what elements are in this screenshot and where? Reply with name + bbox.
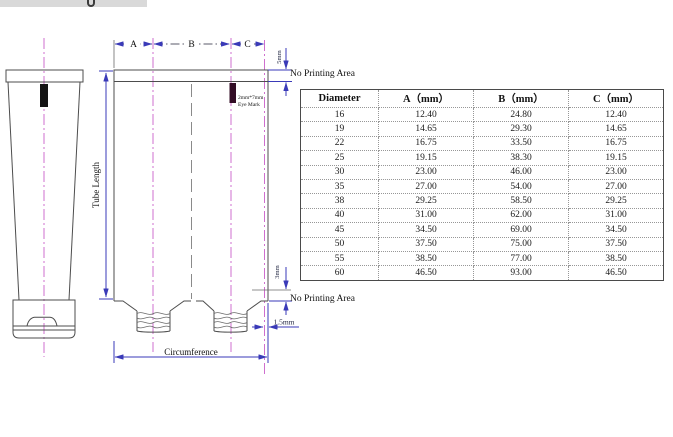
spec-table-body: 1612.4024.8012.401914.6529.3014.652216.7… — [301, 108, 664, 281]
table-row: 1612.4024.8012.40 — [301, 108, 664, 122]
tube-side-view — [6, 38, 83, 357]
table-cell: 37.50 — [569, 237, 664, 251]
table-cell: 45 — [301, 223, 379, 237]
table-cell: 29.25 — [569, 194, 664, 208]
seam-dimension: 1.5mm — [252, 318, 299, 328]
table-cell: 58.50 — [474, 194, 569, 208]
column-header: C（mm） — [569, 90, 664, 108]
table-cell: 38.50 — [379, 251, 474, 265]
table-cell: 46.50 — [569, 266, 664, 280]
column-header: A（mm） — [379, 90, 474, 108]
table-cell: 46.50 — [379, 266, 474, 280]
bottom-offset-label: 3mm — [274, 265, 281, 278]
eye-mark — [40, 84, 48, 107]
table-cell: 60 — [301, 266, 379, 280]
table-cell: 33.50 — [474, 136, 569, 150]
table-cell: 54.00 — [474, 179, 569, 193]
table-cell: 69.00 — [474, 223, 569, 237]
table-cell: 50 — [301, 237, 379, 251]
table-cell: 37.50 — [379, 237, 474, 251]
table-row: 3023.0046.0023.00 — [301, 165, 664, 179]
section-a-label: A — [130, 40, 137, 50]
table-cell: 46.00 — [474, 165, 569, 179]
table-cell: 31.00 — [379, 208, 474, 222]
abc-dimension: A B C — [114, 36, 264, 68]
table-cell: 19 — [301, 122, 379, 136]
table-cell: 75.00 — [474, 237, 569, 251]
table-cell: 14.65 — [569, 122, 664, 136]
tube-flattened-view: 2mm*7mm Eye Mark — [114, 38, 268, 374]
table-cell: 19.15 — [569, 151, 664, 165]
table-cell: 22 — [301, 136, 379, 150]
table-cell: 55 — [301, 251, 379, 265]
tube-spec-sheet: Tube Length 2mm*7mm Eye Mark — [0, 0, 673, 437]
table-cell: 16.75 — [569, 136, 664, 150]
seam-offset-label: 1.5mm — [273, 318, 294, 327]
table-cell: 23.00 — [569, 165, 664, 179]
table-row: 5538.5077.0038.50 — [301, 251, 664, 265]
table-cell: 34.50 — [379, 223, 474, 237]
table-cell: 27.00 — [569, 179, 664, 193]
table-cell: 38.50 — [569, 251, 664, 265]
tube-length-dimension: Tube Length — [91, 71, 113, 299]
table-cell: 12.40 — [569, 108, 664, 122]
table-cell: 12.40 — [379, 108, 474, 122]
eye-mark-size-label: 2mm*7mm — [238, 95, 264, 101]
table-cell: 93.00 — [474, 266, 569, 280]
table-cell: 29.25 — [379, 194, 474, 208]
table-row: 5037.5075.0037.50 — [301, 237, 664, 251]
table-cell: 24.80 — [474, 108, 569, 122]
eye-mark — [230, 83, 237, 103]
table-cell: 35 — [301, 179, 379, 193]
table-cell: 19.15 — [379, 151, 474, 165]
header-row: DiameterA（mm）B（mm）C（mm） — [301, 90, 664, 108]
spec-table-header: DiameterA（mm）B（mm）C（mm） — [301, 90, 664, 108]
section-c-label: C — [244, 40, 250, 50]
table-row: 2519.1538.3019.15 — [301, 151, 664, 165]
table-cell: 25 — [301, 151, 379, 165]
table-row: 3527.0054.0027.00 — [301, 179, 664, 193]
table-row: 4534.5069.0034.50 — [301, 223, 664, 237]
table-cell: 34.50 — [569, 223, 664, 237]
table-row: 1914.6529.3014.65 — [301, 122, 664, 136]
circumference-label: Circumference — [164, 347, 217, 357]
table-cell: 38 — [301, 194, 379, 208]
top-offset-label: 5mm — [276, 50, 283, 63]
table-cell: 30 — [301, 165, 379, 179]
table-cell: 14.65 — [379, 122, 474, 136]
section-b-label: B — [188, 40, 194, 50]
table-cell: 40 — [301, 208, 379, 222]
table-row: 4031.0062.0031.00 — [301, 208, 664, 222]
table-cell: 77.00 — [474, 251, 569, 265]
table-row: 3829.2558.5029.25 — [301, 194, 664, 208]
no-printing-area-bottom-label: No Printing Area — [290, 294, 356, 304]
table-cell: 31.00 — [569, 208, 664, 222]
tube-length-label: Tube Length — [91, 162, 101, 208]
table-row: 6046.5093.0046.50 — [301, 266, 664, 280]
table-cell: 29.30 — [474, 122, 569, 136]
spec-table: DiameterA（mm）B（mm）C（mm） 1612.4024.8012.4… — [300, 89, 664, 281]
table-cell: 23.00 — [379, 165, 474, 179]
table-cell: 62.00 — [474, 208, 569, 222]
table-cell: 38.30 — [474, 151, 569, 165]
table-row: 2216.7533.5016.75 — [301, 136, 664, 150]
no-printing-area-top-label: No Printing Area — [290, 69, 356, 79]
eye-mark-name-label: Eye Mark — [238, 102, 260, 108]
table-cell: 16 — [301, 108, 379, 122]
column-header: B（mm） — [474, 90, 569, 108]
column-header: Diameter — [301, 90, 379, 108]
crimped-seal-end — [114, 70, 268, 82]
table-cell: 27.00 — [379, 179, 474, 193]
table-cell: 16.75 — [379, 136, 474, 150]
